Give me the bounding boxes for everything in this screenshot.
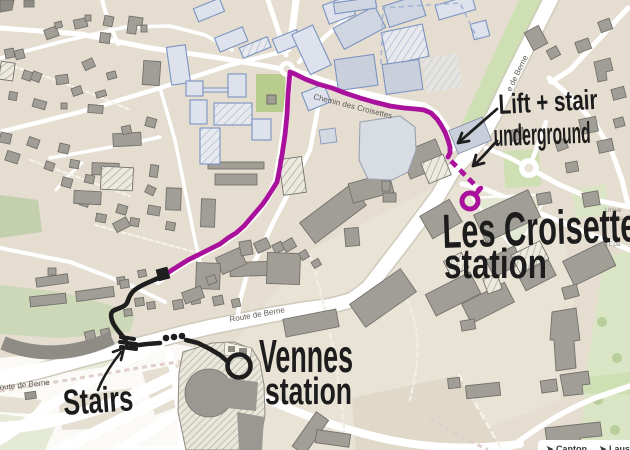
svg-text:Stairs: Stairs — [62, 377, 135, 423]
svg-text:station: station — [265, 371, 352, 413]
svg-text:➤ Lausan: ➤ Lausan — [599, 444, 630, 450]
svg-text:Lift + stair: Lift + stair — [498, 84, 599, 120]
svg-text:underground: underground — [493, 117, 591, 153]
svg-text:station: station — [444, 240, 547, 287]
svg-text:➤ Canton: ➤ Canton — [546, 444, 587, 450]
